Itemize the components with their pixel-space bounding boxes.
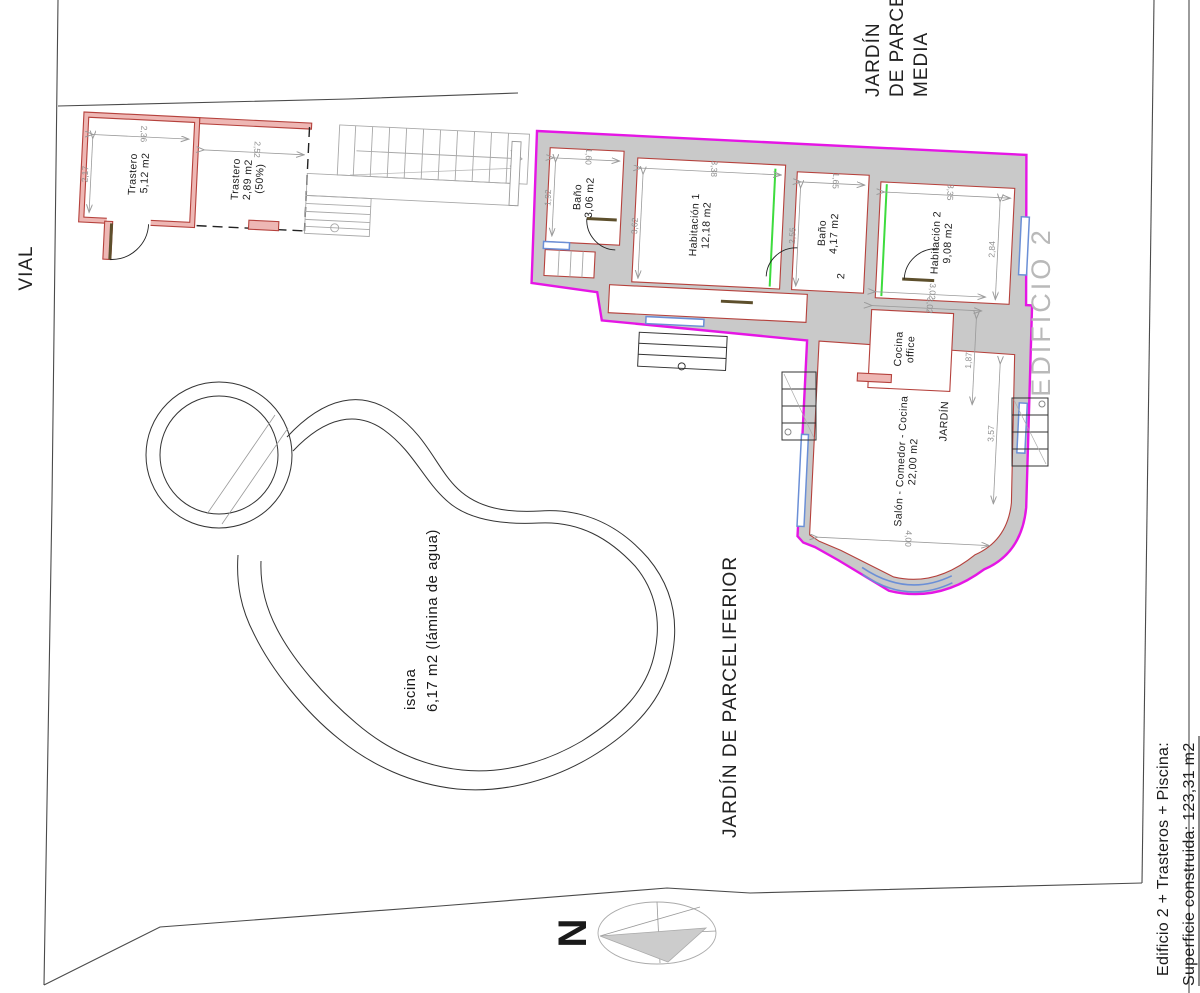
dim-236: 2,36 [139,125,150,142]
label-jardin-inferior-2: IFERIOR [720,556,741,640]
door-leaf-porch [721,301,753,303]
path-line [350,168,520,175]
dim-192: 1,92 [542,189,553,206]
trastero-2-label: Trastero 2,89 m2 (50%) [229,155,267,202]
pool-lobe-outer [146,382,292,528]
trastero-door-arc [110,222,149,261]
site-plan: 2,36 2,17 2,52 Trastero 5,12 m2 Trastero… [0,0,1200,993]
dim-302b: 3,02 [925,297,936,314]
building-edificio-2: 1,60 1,92 3,38 3,62 1,65 2,55 3,35 2,84 … [515,131,1043,599]
parcel-boundary-left [44,0,58,985]
garden-stairs [304,123,529,244]
label-cocina: Cocinaoffice [892,331,918,367]
label-vial: VIAL [16,245,37,290]
door-leaf-habitacion2 [902,279,934,281]
stair-landing [306,173,517,205]
dim-160: 1,60 [583,148,594,165]
north-arrow-pointer [600,928,706,962]
pool-step-line-2 [222,428,288,524]
porch-stair [638,332,728,372]
dim-217: 2,17 [80,165,91,182]
label-jardin-inferior-1: JARDÍN DE PARCEL [720,642,741,838]
label-jardin-media-1: JARDÍN [863,22,884,97]
label-habitacion1: Habitación 112,18 m2 [687,193,714,257]
trastero-door-leaf [110,223,112,259]
pool-step-line-1 [207,415,275,514]
summary-line-1: Edificio 2 + Trasteros + Piscina: [1155,742,1172,976]
window-banyo1 [543,241,569,249]
dim-338: 3,38 [709,160,720,177]
dim-357: 3,57 [985,425,996,442]
swimming-pool: iscina 6,17 m2 (lámina de agua) [146,382,675,790]
pool-name-label: iscina [402,668,419,710]
label-jardin-interior: JARDÍN [936,401,951,442]
entry-vestibule [544,250,595,278]
dim-335: 3,35 [945,184,956,201]
dim-187: 1,87 [963,352,974,369]
summary-line-2: Superficie construida: 123,31 m2 [1181,742,1198,986]
dim-400: 4,00 [903,530,914,547]
label-jardin-media-2: DE PARCELA [887,0,908,97]
trastero-2-wall-stub [248,220,278,230]
dim-284: 2,84 [986,241,997,258]
parcel-boundary-right [1142,0,1154,883]
trastero-1-label: Trastero 5,12 m2 [126,150,152,196]
cocina-wall-stub [857,373,891,383]
label-edificio-2: EDIFICIO 2 [1026,227,1056,397]
pool-body-outer [238,400,675,790]
north-arrow: N [551,902,716,964]
trastero-block: 2,36 2,17 2,52 Trastero 5,12 m2 Trastero… [76,112,312,269]
pool-area-label: 6,17 m2 (lámina de agua) [424,529,441,712]
trastero-2-top-wall [200,118,312,129]
dim-362: 3,62 [629,217,640,234]
label-jardin-media-3: MEDIA [911,32,932,97]
window-salon-right [1017,403,1027,453]
wall-fragment [509,141,521,205]
parcel-boundary-top [58,93,518,106]
north-letter: N [551,919,595,948]
dim-165: 1,65 [831,172,842,189]
dim-255: 2,55 [787,227,798,244]
pool-body-inner [261,419,657,771]
label-level-2: 2 [835,273,847,280]
surface-summary: Edificio 2 + Trasteros + Piscina: Superf… [1155,736,1200,986]
dim-252: 2,52 [252,141,263,158]
